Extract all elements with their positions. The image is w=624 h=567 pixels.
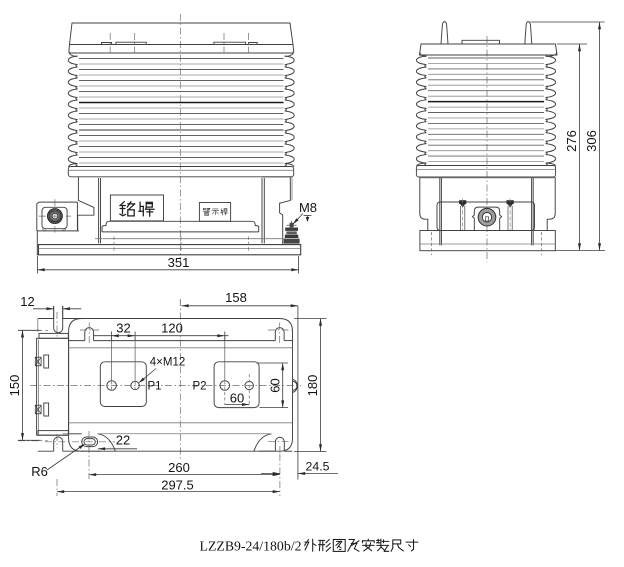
- svg-text:P1: P1: [147, 381, 161, 393]
- svg-text:180: 180: [305, 375, 320, 397]
- svg-text:306: 306: [584, 130, 599, 152]
- svg-text:276: 276: [564, 130, 579, 152]
- svg-text:LZZB9-24/180b/2: LZZB9-24/180b/2: [200, 539, 302, 554]
- svg-text:32: 32: [116, 321, 130, 336]
- svg-text:158: 158: [225, 290, 247, 305]
- svg-text:22: 22: [116, 433, 130, 448]
- svg-text:150: 150: [7, 375, 22, 397]
- svg-text:351: 351: [168, 255, 190, 270]
- svg-text:24.5: 24.5: [306, 460, 330, 474]
- svg-text:260: 260: [168, 460, 190, 475]
- svg-text:M8: M8: [299, 200, 317, 215]
- svg-text:P2: P2: [192, 381, 206, 393]
- svg-text:297.5: 297.5: [161, 478, 194, 493]
- svg-text:60: 60: [267, 378, 282, 392]
- svg-text:4×M12: 4×M12: [150, 357, 185, 369]
- svg-text:120: 120: [161, 321, 183, 336]
- svg-text:12: 12: [20, 294, 34, 309]
- svg-text:R6: R6: [31, 464, 48, 479]
